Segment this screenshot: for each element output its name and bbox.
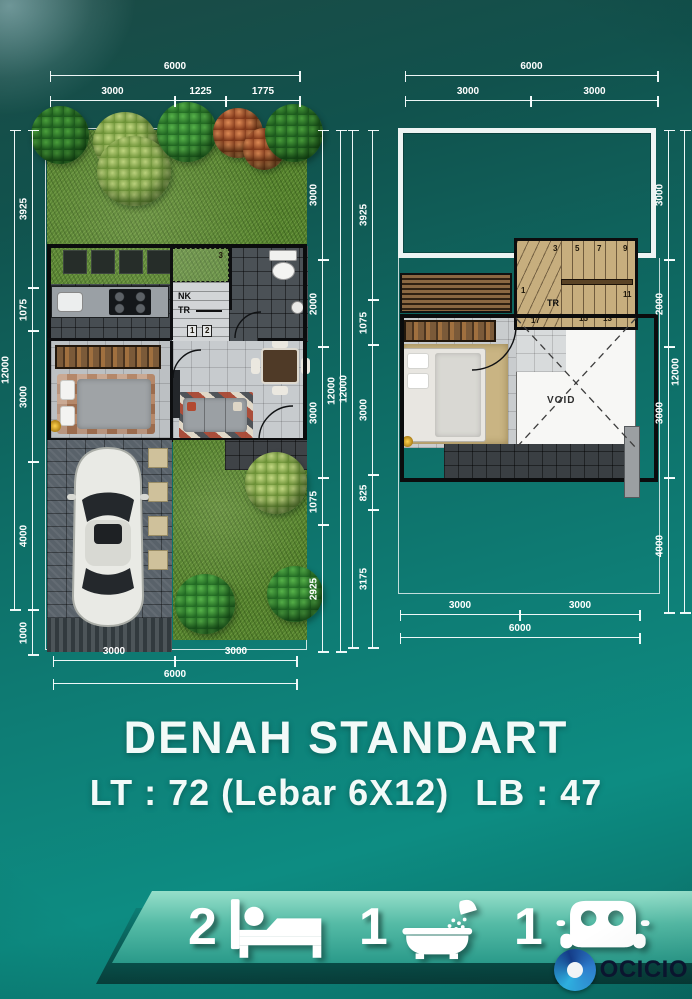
wall-pier (624, 426, 640, 498)
dimension: 1000 (32, 610, 33, 655)
dimension: 3000 (175, 660, 297, 661)
lb-spec: LB : 47 (475, 772, 602, 814)
stair-rail (561, 279, 633, 285)
dimension: 6000 (405, 75, 658, 76)
flyer-canvas: 3 NK TR 1 2 (0, 0, 692, 999)
dimension-label: 3000 (309, 401, 320, 423)
dimension: 12000 (684, 130, 685, 613)
dimension: 3000 (531, 100, 658, 101)
spec-line: LT : 72 (Lebar 6X12) LB : 47 (0, 772, 692, 814)
dimension-label: 2925 (309, 577, 320, 599)
stair-step-number: 3 (553, 245, 557, 253)
dimension: 3000 (372, 345, 373, 475)
tree-icon (265, 104, 323, 162)
tr-label: TR (547, 299, 559, 308)
dimension-label: 3925 (19, 198, 30, 220)
dimension: 4000 (668, 478, 669, 613)
dimension: 3000 (405, 100, 531, 101)
dimension: 3000 (668, 347, 669, 478)
dimension-label: 12000 (327, 377, 338, 405)
dimension-label: 3000 (19, 385, 30, 407)
dimension-label: 3000 (655, 184, 666, 206)
dimension: 3000 (668, 130, 669, 260)
stair-step-number: 1 (521, 287, 525, 295)
bathtub-icon (400, 894, 484, 960)
dimension-label: 3000 (405, 86, 531, 97)
partition-wall (47, 338, 170, 341)
car-top-view (61, 444, 155, 632)
tree-icon (245, 452, 307, 514)
page-title: DENAH STANDART (0, 712, 692, 764)
dimension-label: 2000 (655, 292, 666, 314)
partition-wall (229, 246, 232, 310)
dimension: 3925 (372, 130, 373, 300)
dimension: 1075 (322, 478, 323, 525)
bush-icon (175, 574, 235, 634)
dimension: 1075 (372, 300, 373, 345)
dimension: 4000 (32, 462, 33, 610)
partition-wall (258, 338, 307, 341)
tree-icon (157, 102, 217, 162)
dimension-label: 3000 (175, 646, 297, 657)
stair-step-number: 7 (597, 245, 601, 253)
dimension-label: 1075 (309, 490, 320, 512)
dimension-label: 1775 (226, 86, 300, 97)
dimension: 3175 (372, 510, 373, 648)
dimension-label: 3925 (359, 204, 370, 226)
carport-count: 1 (514, 897, 543, 957)
dimension: 3000 (520, 614, 640, 615)
tree-icon (31, 106, 89, 164)
dimension: 3000 (53, 660, 175, 661)
dimension-label: 3000 (359, 399, 370, 421)
dimension: 1075 (32, 288, 33, 331)
bathroom-count: 1 (359, 897, 388, 957)
dimension-label: 1075 (19, 298, 30, 320)
dimension-label: 1075 (359, 311, 370, 333)
dimension-label: 6000 (405, 61, 658, 72)
dimension-label: 825 (359, 484, 370, 501)
dimension: 3000 (32, 331, 33, 462)
dimension: 3925 (32, 130, 33, 288)
dimension: 3000 (400, 614, 520, 615)
dimension-label: 3000 (53, 646, 175, 657)
dimension-label: 3000 (655, 401, 666, 423)
dimension-label: 3000 (400, 600, 520, 611)
dimension-label: 3000 (309, 184, 320, 206)
dimension: 2000 (322, 260, 323, 347)
ground-floor-plan: 3 NK TR 1 2 (45, 126, 311, 656)
dimension-label: 1225 (175, 86, 226, 97)
dimension: 6000 (400, 637, 640, 638)
dimension-label: 12000 (339, 375, 350, 403)
dimension-label: 3000 (50, 86, 175, 97)
logo-mark-icon (554, 949, 596, 991)
bed-icon (229, 894, 329, 960)
canopy-roof (400, 273, 512, 313)
lt-spec: LT : 72 (Lebar 6X12) (90, 772, 449, 814)
dimension-label: 3000 (520, 600, 640, 611)
dimension-label: 4000 (655, 534, 666, 556)
dimension: 12000 (352, 130, 353, 648)
dimension: 3000 (322, 347, 323, 478)
dimension-label: 6000 (50, 61, 300, 72)
dimension-label: 4000 (19, 525, 30, 547)
dimension: 3000 (50, 100, 175, 101)
dimension-label: 6000 (53, 669, 297, 680)
upper-floor-plan: VOID 1 3 5 7 9 11 13 15 17 TR (398, 126, 662, 610)
dimension-label: 3175 (359, 568, 370, 590)
dimension: 1775 (226, 100, 300, 101)
dimension-label: 12000 (1, 356, 12, 384)
partition-wall (170, 246, 173, 340)
exterior-walls (47, 244, 307, 442)
dimension: 12000 (14, 130, 15, 610)
logo-text: OCICIO (600, 956, 688, 984)
dimension: 6000 (53, 683, 297, 684)
dimension: 2925 (322, 525, 323, 652)
exterior-walls (400, 314, 658, 482)
bedroom-count: 2 (188, 897, 217, 957)
dimension-label: 2000 (309, 292, 320, 314)
stair-step-number: 5 (575, 245, 579, 253)
stair-step-number: 9 (623, 245, 627, 253)
dimension: 825 (372, 475, 373, 510)
dimension-label: 12000 (671, 358, 682, 386)
dimension: 1225 (175, 100, 226, 101)
dimension-label: 1000 (19, 621, 30, 643)
partition-wall (170, 341, 173, 440)
dimension: 3000 (322, 130, 323, 260)
dimension: 6000 (50, 75, 300, 76)
stair-step-number: 11 (623, 291, 631, 299)
dimension-label: 6000 (400, 623, 640, 634)
dimension: 2000 (668, 260, 669, 347)
brand-logo: OCICIO (554, 949, 688, 991)
dimension-label: 3000 (531, 86, 658, 97)
